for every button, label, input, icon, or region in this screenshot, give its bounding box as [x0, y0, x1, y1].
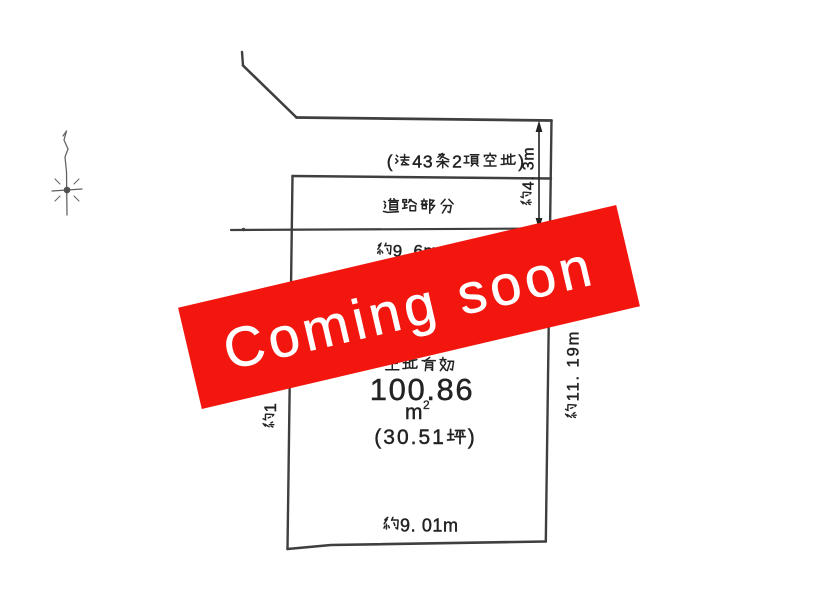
svg-text:9. 01m: 9. 01m [400, 516, 459, 536]
svg-text:m: m [405, 401, 423, 424]
svg-text:11. 19m: 11. 19m [565, 330, 583, 402]
svg-text:4. 3m: 4. 3m [520, 147, 537, 191]
svg-text:43: 43 [412, 152, 433, 172]
svg-text:2: 2 [423, 398, 430, 412]
svg-text:(: ( [387, 152, 394, 172]
svg-text:(30.51: (30.51 [374, 426, 446, 449]
svg-text:): ) [468, 426, 477, 449]
svg-text:2: 2 [452, 152, 463, 172]
svg-text:1: 1 [262, 403, 280, 413]
